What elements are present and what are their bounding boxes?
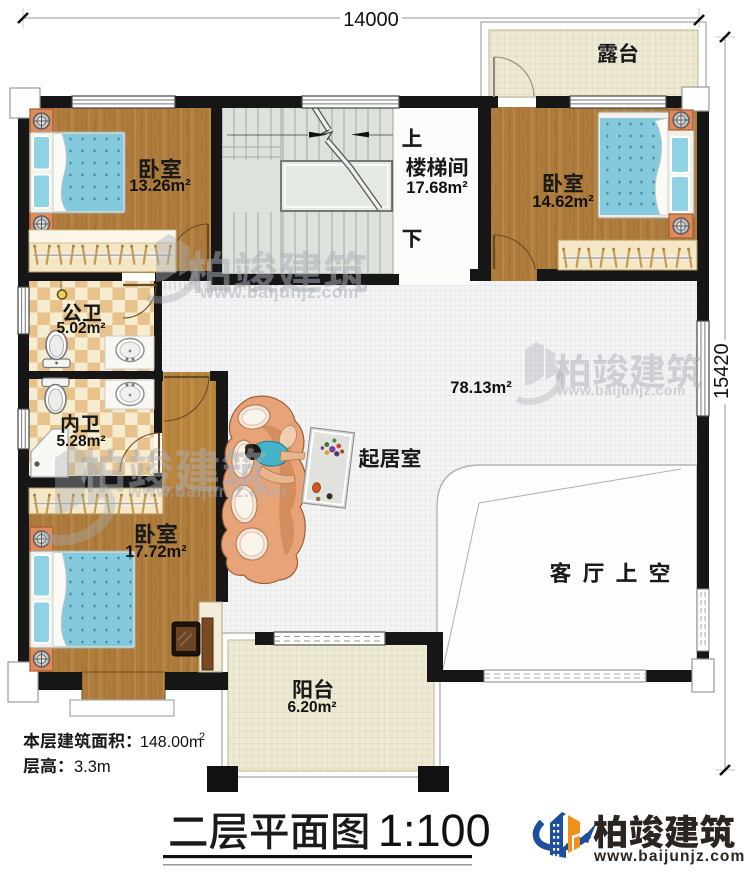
svg-text:www.baijunjz.com: www.baijunjz.com bbox=[593, 848, 745, 865]
svg-text:17.68m²: 17.68m² bbox=[406, 179, 468, 197]
svg-text:78.13m²: 78.13m² bbox=[450, 379, 512, 397]
svg-text:1:100: 1:100 bbox=[378, 805, 491, 856]
svg-text:13.26m²: 13.26m² bbox=[129, 177, 191, 195]
svg-text:14.62m²: 14.62m² bbox=[532, 193, 594, 211]
svg-text:14000: 14000 bbox=[343, 9, 399, 31]
svg-text:148.00m: 148.00m bbox=[140, 734, 202, 751]
svg-text:www.baijunjz.com: www.baijunjz.com bbox=[556, 382, 686, 398]
svg-text:5.02m²: 5.02m² bbox=[56, 320, 105, 337]
svg-text:www.baijunjz.com: www.baijunjz.com bbox=[127, 481, 287, 501]
svg-text:3.3m: 3.3m bbox=[74, 758, 111, 776]
svg-text:2: 2 bbox=[199, 731, 205, 743]
svg-text:www.baijunjz.com: www.baijunjz.com bbox=[199, 282, 359, 302]
svg-text:5.28m²: 5.28m² bbox=[56, 433, 105, 450]
svg-text:6.20m²: 6.20m² bbox=[287, 699, 336, 716]
svg-text:15420: 15420 bbox=[711, 343, 733, 399]
svg-text:17.72m²: 17.72m² bbox=[125, 543, 187, 561]
